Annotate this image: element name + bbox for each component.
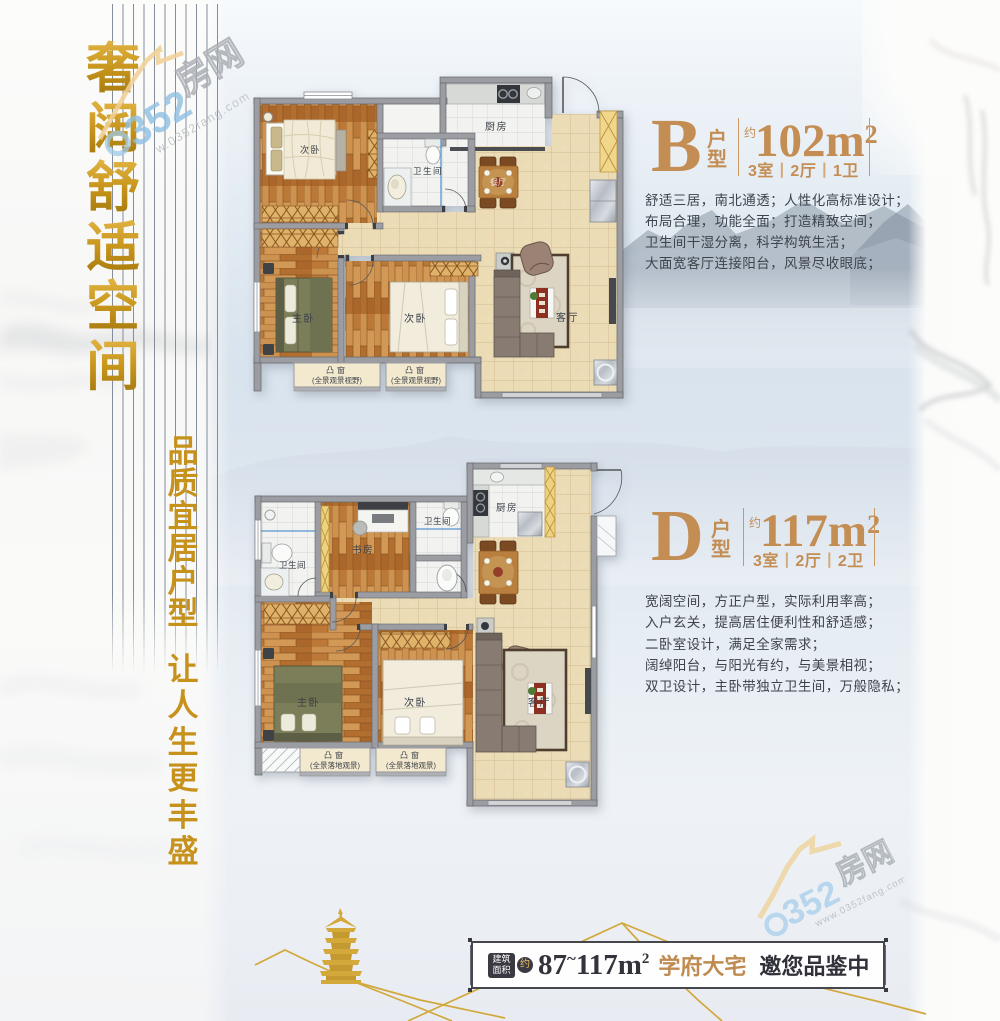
- svg-text:书房: 书房: [352, 544, 374, 556]
- svg-text:餐厅: 餐厅: [490, 178, 506, 187]
- svg-text:厨房: 厨房: [485, 120, 508, 133]
- svg-text:卫生间: 卫生间: [413, 166, 443, 176]
- svg-text:次卧: 次卧: [404, 312, 427, 325]
- svg-text:厨房: 厨房: [496, 502, 518, 514]
- svg-text:主卧: 主卧: [292, 312, 315, 325]
- svg-text:(全景观景视野): (全景观景视野): [391, 375, 441, 385]
- svg-text:卫生间: 卫生间: [279, 560, 306, 570]
- svg-text:主卧: 主卧: [297, 696, 320, 709]
- svg-text:凸窗: 凸窗: [326, 365, 348, 375]
- svg-text:凸窗: 凸窗: [405, 365, 427, 375]
- svg-text:客厅: 客厅: [528, 696, 551, 709]
- svg-text:(全景观景视野): (全景观景视野): [312, 375, 362, 385]
- svg-text:卫生间: 卫生间: [424, 516, 451, 526]
- svg-text:凸窗: 凸窗: [400, 750, 422, 760]
- svg-text:(全景落地观景): (全景落地观景): [310, 760, 360, 770]
- svg-text:客厅: 客厅: [556, 311, 579, 324]
- svg-text:(全景落地观景): (全景落地观景): [386, 760, 436, 770]
- svg-text:凸窗: 凸窗: [324, 750, 346, 760]
- svg-text:次卧: 次卧: [300, 144, 321, 155]
- svg-text:次卧: 次卧: [404, 696, 427, 709]
